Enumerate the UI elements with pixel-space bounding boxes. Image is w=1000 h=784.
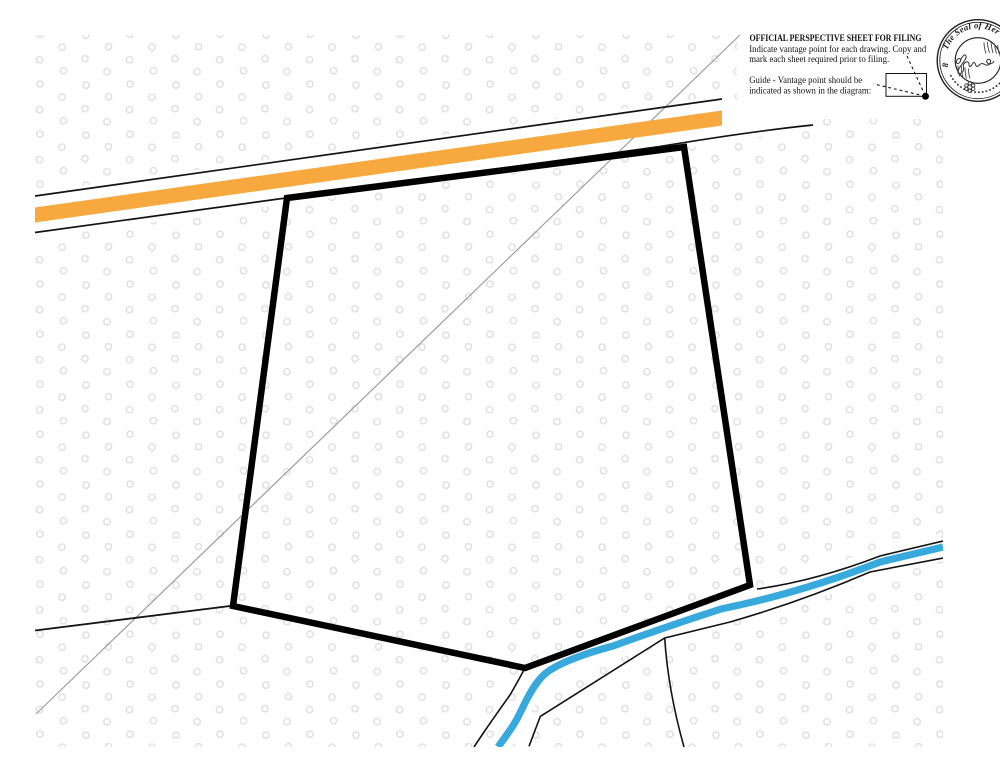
svg-text:OFFICIAL PERSPECTIVE SHEET FOR: OFFICIAL PERSPECTIVE SHEET FOR FILING — [750, 33, 922, 43]
svg-text:Guide - Vantage point should b: Guide - Vantage point should be — [749, 75, 862, 85]
svg-text:mark each sheet required prior: mark each sheet required prior to filing… — [749, 54, 889, 64]
svg-text:indicated as shown in the diag: indicated as shown in the diagram: — [749, 86, 871, 96]
svg-text:Indicate vantage point for eac: Indicate vantage point for each drawing.… — [749, 44, 926, 54]
